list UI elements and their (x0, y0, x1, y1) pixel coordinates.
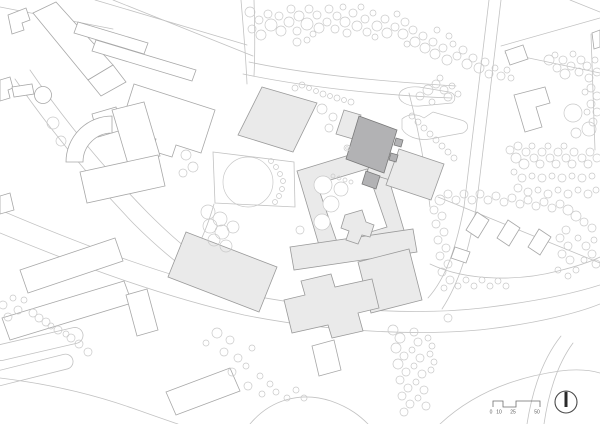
tree-cluster-east-residential-shape (540, 198, 548, 206)
site-plan-drawing: 0 10 25 50 (0, 0, 600, 424)
tree-cluster-north-shape (453, 52, 461, 60)
tree-cluster-east-residential-shape (564, 242, 572, 250)
building-outline (592, 30, 600, 49)
tree-cluster-midright-shape (584, 160, 592, 168)
tree-cluster-north-shape (462, 59, 472, 69)
tree-cluster-topright-shape (592, 57, 598, 63)
tree-cluster-north-shape (420, 43, 430, 53)
tree-cluster-midright-shape (538, 174, 546, 182)
tree-scatter-south-shape (244, 382, 252, 390)
landform-contours-shape (402, 112, 468, 139)
tree-row-east-of-highlight-shape (432, 80, 440, 88)
plaza-and-campus-trees-shape (278, 172, 283, 177)
tree-cluster-north-shape (293, 38, 301, 46)
tree-cluster-north-shape (429, 38, 437, 46)
tree-band-southeast-shape (402, 368, 410, 376)
tree-scatter-south-shape (249, 345, 255, 351)
roads-and-paths-shape (250, 397, 368, 424)
tree-cluster-east-residential-shape (588, 250, 596, 258)
tree-row-campus-north-shape (307, 86, 312, 91)
tree-cluster-east-residential-shape (440, 228, 448, 236)
tree-cluster-east-residential-shape (580, 218, 588, 226)
tree-cluster-north-shape (504, 67, 510, 73)
tree-cluster-topright-shape (587, 84, 595, 92)
tree-band-southeast-shape (409, 347, 415, 353)
roads-and-paths-shape (570, 0, 600, 12)
tree-cluster-east-residential-shape (503, 283, 509, 289)
tree-cluster-topright-shape (585, 74, 593, 82)
tree-cluster-north-shape (409, 26, 417, 34)
tree-cluster-east-residential-shape (442, 244, 450, 252)
tree-band-southeast-shape (410, 328, 418, 336)
tree-cluster-east-residential-shape (500, 198, 508, 206)
plaza-and-campus-trees-shape (296, 226, 304, 234)
tree-row-east-of-highlight-shape (439, 143, 445, 149)
roads-and-paths-shape (464, 0, 489, 207)
plaza-and-campus-trees-shape (213, 212, 227, 226)
tree-cluster-east-residential-shape (532, 202, 540, 210)
tree-cluster-topright-shape (559, 56, 567, 64)
tree-row-east-of-highlight-shape (423, 85, 433, 95)
tree-cluster-north-shape (284, 17, 294, 27)
tree-cluster-east-residential-shape (455, 283, 461, 289)
tree-cluster-east-residential-shape (434, 236, 442, 244)
tree-cluster-midright-shape (568, 160, 576, 168)
tree-cluster-north-shape (442, 55, 452, 65)
tree-cluster-north-shape (508, 75, 514, 81)
tree-row-campus-north-shape (317, 104, 327, 114)
tree-cluster-east-residential-shape (571, 211, 581, 221)
roads-and-paths-shape (0, 378, 178, 424)
tree-cluster-north-shape (370, 10, 376, 16)
plaza-and-campus-trees-shape (188, 162, 198, 172)
tree-scatter-south-shape (259, 391, 265, 397)
tree-scatter-south-shape (220, 348, 228, 356)
tree-cluster-north-shape (255, 16, 263, 24)
plaza-and-campus-trees-shape (274, 165, 279, 170)
tree-cluster-north-shape (401, 18, 409, 26)
tree-row-east-of-highlight-shape (440, 86, 448, 94)
tree-scatter-south-shape (234, 354, 242, 362)
roads-and-paths-shape (527, 336, 561, 424)
tree-cluster-east-residential-shape (591, 237, 597, 243)
building-outline (528, 229, 551, 255)
tree-band-southeast-shape (400, 408, 408, 416)
tree-cluster-midright (506, 104, 600, 198)
tree-cluster-east-residential-shape (492, 192, 500, 200)
tree-cluster-east-residential-shape (562, 226, 570, 234)
tree-cluster-north-shape (419, 32, 427, 40)
tree-band-southeast-shape (388, 325, 398, 335)
tree-band-southeast-shape (416, 354, 424, 362)
tree-row-east-of-highlight-shape (429, 99, 435, 105)
tree-scatter-south-shape (301, 395, 307, 401)
tree-cluster-midright-shape (522, 148, 530, 156)
tree-row-campus-north-shape (325, 124, 333, 132)
building-outline (8, 8, 30, 34)
tree-cluster-east-residential-shape (444, 190, 452, 198)
tree-cluster-midright-shape (518, 174, 526, 182)
tree-scatter-south-shape (293, 387, 299, 393)
scale-label: 25 (510, 410, 516, 416)
scale-label: 0 (490, 410, 493, 416)
plaza-and-campus-trees-shape (277, 194, 282, 199)
tree-row-east-of-highlight-shape (445, 149, 451, 155)
tree-cluster-topright-shape (560, 69, 570, 79)
tree-cluster-midright-shape (545, 143, 551, 149)
tree-scatter-south-shape (226, 336, 234, 344)
tree-row-east-of-highlight-shape (437, 75, 443, 81)
tree-cluster-north-shape (340, 4, 346, 10)
plaza-and-campus-trees-shape (181, 150, 191, 160)
tree-cluster-north-shape (325, 5, 333, 13)
tree-cluster-topright-shape (570, 51, 576, 57)
tree-cluster-north-shape (372, 21, 382, 31)
tree-cluster-east-residential-shape (508, 194, 516, 202)
tree-cluster-topright-shape (553, 64, 561, 72)
tree-row-campus-north-shape (329, 113, 337, 121)
tree-cluster-midright-shape (514, 142, 522, 150)
tree-cluster-midright-shape (529, 173, 535, 179)
tree-cluster-midright-shape (578, 174, 586, 182)
tree-cluster-east-residential-shape (588, 224, 596, 232)
tree-band-southeast-shape (396, 376, 404, 384)
tree-cluster-midright-shape (575, 187, 581, 193)
tree-cluster-east-residential-shape (463, 277, 469, 283)
tree-cluster-east-residential-shape (565, 273, 571, 279)
plaza-and-campus-trees-shape (179, 169, 187, 177)
tree-cluster-midright-shape (561, 143, 567, 149)
plaza-and-campus-trees-shape (314, 176, 332, 194)
scale-label: 50 (534, 410, 540, 416)
tree-cluster-north-shape (304, 37, 310, 43)
tree-cluster-midright-shape (562, 154, 570, 162)
plaza-and-campus-trees-shape (314, 214, 330, 230)
highlighted-building-bay (394, 138, 403, 147)
tree-cluster-topright-shape (552, 52, 558, 58)
tree-scatter-south-shape (273, 389, 279, 395)
building-outline (20, 238, 123, 293)
tree-row-campus-north-shape (292, 85, 298, 91)
tree-row-east-of-highlight-shape (421, 125, 427, 131)
scale-bar: 0 10 25 50 (490, 401, 540, 416)
tree-cluster-midright-shape (564, 190, 572, 198)
tree-cluster-midright-shape (570, 148, 578, 156)
tree-cluster-north-shape (372, 34, 378, 40)
tree-band-southeast-shape (393, 359, 403, 369)
tree-cluster-midright-shape (586, 148, 594, 156)
tree-band-southeast-shape (431, 359, 437, 365)
tree-cluster-east-residential-shape (556, 234, 564, 242)
tree-scatter-south-shape (257, 373, 263, 379)
tree-cluster-north-shape (301, 18, 313, 30)
tree-cluster-north-shape (382, 28, 392, 38)
tree-cluster-east-residential-shape (524, 196, 532, 204)
roads-and-paths-shape (249, 62, 456, 86)
tree-row-campus-north-shape (334, 95, 340, 101)
plaza-boundary (213, 152, 295, 207)
tree-cluster-midright-shape (578, 154, 586, 162)
tree-band-southeast-shape (425, 335, 431, 341)
building-outline (0, 193, 14, 214)
tree-cluster-east-residential-shape (438, 212, 446, 220)
tree-cluster-midright-shape (593, 154, 600, 162)
tree-cluster-north-shape (340, 17, 350, 27)
tree-cluster-north-shape (352, 21, 362, 31)
building-outline (80, 155, 165, 203)
tree-cluster-east-residential-shape (446, 276, 454, 284)
tree-cluster-north-shape (434, 27, 440, 33)
tree-band-southeast-shape (420, 386, 428, 394)
tree-cluster-midright-shape (529, 143, 535, 149)
tree-band-southeast-shape (428, 367, 434, 373)
campus-north-slab (238, 87, 317, 152)
tree-cluster-east-residential-shape (581, 257, 587, 263)
tree-cluster-east-residential-shape (573, 267, 579, 273)
tree-row-southwest-shape (75, 340, 83, 348)
tree-row-campus-north-shape (320, 91, 326, 97)
tree-band-southeast-shape (444, 314, 452, 322)
tree-cluster-north-shape (391, 23, 399, 31)
roads-and-paths-shape (476, 0, 501, 209)
plaza-and-campus-trees-shape (280, 187, 285, 192)
tree-band-southeast-shape (413, 379, 419, 385)
tree-band-southeast-shape (422, 402, 430, 410)
tree-row-east-of-highlight-shape (455, 91, 461, 97)
tree-cluster-north-shape (459, 46, 467, 54)
tree-cluster-east-residential-shape (479, 277, 485, 283)
tree-cluster-midright-shape (524, 188, 532, 196)
tree-cluster-north-shape (323, 18, 331, 26)
tree-cluster-east-residential-shape (441, 285, 447, 291)
tree-cluster-east-residential-shape (452, 196, 460, 204)
north-arrow-icon (555, 391, 577, 413)
tree-row-southwest-shape (67, 334, 75, 342)
tree-cluster-north-shape (381, 15, 389, 23)
tree-cluster-east-residential-shape (484, 196, 492, 204)
tree-row-east-of-highlight-shape (444, 93, 452, 101)
building-outline (0, 77, 13, 101)
site-plan-page: 0 10 25 50 (0, 0, 600, 424)
tree-cluster-north-shape (363, 28, 371, 36)
tree-cluster-north-shape (430, 49, 440, 59)
tree-cluster-midright-shape (555, 187, 561, 193)
tree-cluster-topright-shape (584, 109, 590, 115)
tree-cluster-east-residential-shape (471, 283, 477, 289)
tree-band-southeast-shape (400, 352, 408, 360)
tree-cluster-midright-shape (569, 173, 575, 179)
tree-cluster-north-shape (474, 63, 484, 73)
tree-row-southwest-shape (84, 348, 92, 356)
campus-sw-slab (168, 232, 277, 312)
tree-cluster-midright-shape (519, 159, 529, 169)
tree-cluster-topright-shape (582, 89, 588, 95)
tree-scatter-south-shape (267, 381, 273, 387)
tree-cluster-north (245, 4, 514, 81)
tree-cluster-east-residential-shape (436, 252, 444, 260)
tree-band-southeast-shape (414, 338, 422, 346)
tree-cluster-topright-shape (593, 92, 600, 100)
building-outline (126, 289, 158, 336)
tree-band-southeast-shape (415, 395, 421, 401)
tree-band-southeast-shape (398, 392, 406, 400)
tree-cluster-east-residential-shape (460, 190, 468, 198)
tree-cluster-north-shape (264, 10, 272, 18)
tree-cluster-north-shape (245, 7, 255, 17)
arc-building (66, 116, 112, 162)
tree-cluster-north-shape (410, 37, 420, 47)
plaza-and-campus-trees-shape (201, 205, 215, 219)
tree-scatter-south-shape (284, 395, 290, 401)
tree-band-southeast-shape (411, 363, 417, 369)
tree-cluster-midright-shape (571, 128, 581, 138)
tree-cluster-north-shape (294, 11, 304, 21)
tree-scatter-south-shape (212, 328, 222, 338)
tree-cluster-north-shape (358, 4, 364, 10)
tree-cluster-north-shape (314, 23, 324, 33)
tree-cluster-midright-shape (506, 146, 514, 154)
tree-cluster-north-shape (331, 25, 339, 33)
tree-cluster-north-shape (265, 19, 277, 31)
tree-band-southeast-shape (427, 351, 433, 357)
tree-cluster-midright-shape (593, 187, 599, 193)
plaza-and-campus-trees-shape (273, 200, 278, 205)
roads-and-paths-shape (241, 0, 247, 84)
tree-cluster-midright-shape (546, 154, 554, 162)
tree-cluster-midright-shape (538, 148, 546, 156)
tree-cluster-east-residential-shape (476, 190, 484, 198)
tree-row-campus-north-shape (348, 99, 354, 105)
tree-cluster-north-shape (275, 12, 283, 20)
landform-contours-shape (399, 87, 455, 106)
plaza-and-campus-trees-shape (227, 221, 239, 233)
plaza-and-campus-trees-shape (281, 179, 286, 184)
tree-cluster-midright-shape (535, 187, 541, 193)
tree-row-southwest-shape (0, 301, 7, 309)
tree-cluster-midright-shape (530, 154, 538, 162)
tree-cluster-east-residential-shape (495, 278, 501, 284)
tree-row-east-of-highlight-shape (427, 131, 433, 137)
tree-cluster-midright-shape (564, 104, 582, 122)
tree-cluster-east-residential-shape (432, 220, 440, 228)
tree-row-east-of-highlight-shape (451, 155, 457, 161)
tree-row-southwest-shape (54, 326, 62, 334)
tree-cluster-north-shape (361, 15, 369, 23)
tree-cluster-midright-shape (544, 190, 552, 198)
tree-cluster-midright-shape (558, 174, 566, 182)
tree-cluster-east-residential-shape (435, 195, 445, 205)
campus-cross-building (284, 274, 379, 338)
tree-band-southeast-shape (391, 343, 401, 353)
tree-cluster-north-shape (394, 11, 400, 17)
tree-cluster-midright-shape (584, 190, 592, 198)
tree-cluster-midright-shape (549, 173, 555, 179)
tree-cluster-north-shape (439, 44, 447, 52)
building-outline (312, 340, 341, 376)
tree-cluster-north-shape (293, 27, 301, 35)
tree-cluster-midright-shape (552, 160, 560, 168)
tree-cluster-east-residential-shape (430, 206, 438, 214)
context-buildings (0, 2, 600, 415)
tree-cluster-east-residential-shape (548, 204, 556, 212)
tree-cluster-topright-shape (577, 56, 585, 64)
fountain (346, 147, 349, 150)
building-outline (514, 87, 550, 132)
tree-cluster-north-shape (469, 54, 477, 62)
plaza-and-campus-trees-shape (323, 196, 339, 212)
plaza-and-campus-trees-shape (334, 182, 348, 196)
tree-cluster-east-residential-shape (566, 256, 574, 264)
tree-row-campus-north-shape (314, 89, 319, 94)
tree-cluster-north-shape (497, 72, 505, 80)
tree-cluster-east-residential-shape (558, 250, 566, 258)
scale-bar-line (493, 401, 540, 407)
tree-cluster-east-residential-shape (468, 196, 476, 204)
tree-row-southwest-shape (21, 297, 27, 303)
tree-cluster-north-shape (276, 26, 286, 36)
highlighted-building-bay (389, 153, 398, 162)
tree-cluster-north-shape (310, 31, 316, 37)
tree-cluster-east-residential-shape (582, 242, 590, 250)
tree-cluster-midright-shape (536, 160, 544, 168)
hedge-strip (0, 353, 75, 388)
tree-cluster-north-shape (446, 33, 452, 39)
tree-band-southeast-shape (429, 343, 435, 349)
building-outline (466, 212, 489, 238)
tree-cluster-east-residential-shape (556, 200, 564, 208)
tree-row-southwest-shape (10, 295, 16, 301)
tree-band-southeast (388, 314, 452, 416)
tree-cluster-north-shape (313, 11, 321, 19)
tree-cluster-midright-shape (511, 169, 517, 175)
roads-and-paths-shape (501, 18, 600, 46)
tree-cluster-east-residential-shape (555, 267, 561, 273)
tree-row-campus-north-shape (342, 98, 347, 103)
building-outline (12, 84, 34, 97)
tree-band-southeast-shape (406, 400, 414, 408)
tree-cluster-north-shape (287, 5, 295, 13)
tree-cluster-north-shape (305, 5, 313, 13)
tree-cluster-north-shape (333, 12, 341, 20)
tree-cluster-north-shape (398, 29, 408, 39)
tree-cluster-midright-shape (589, 173, 595, 179)
tree-scatter-south-shape (243, 363, 249, 369)
tree-cluster-north-shape (404, 41, 410, 47)
tree-band-southeast-shape (404, 384, 412, 392)
scale-label: 10 (496, 410, 502, 416)
round-annex (35, 87, 52, 104)
building-outline (497, 220, 520, 246)
tree-cluster-topright-shape (575, 68, 583, 76)
tree-cluster-north-shape (450, 41, 456, 47)
tree-cluster-east-residential (430, 190, 600, 291)
tree-band-southeast-shape (395, 333, 405, 343)
plaza-and-campus-trees-shape (47, 117, 59, 129)
round-plaza (223, 157, 273, 207)
tree-cluster-east-residential-shape (487, 283, 493, 289)
tree-cluster-east-residential-shape (575, 235, 581, 241)
tree-row-east-of-highlight-shape (409, 113, 415, 119)
tree-cluster-topright-shape (583, 62, 591, 70)
tree-cluster-midright-shape (514, 184, 522, 192)
tree-cluster-north-shape (349, 9, 357, 17)
tree-cluster-north-shape (481, 58, 489, 66)
tree-row-campus-north-shape (328, 94, 333, 99)
tree-band-southeast-shape (418, 370, 426, 378)
tree-cluster-east-residential-shape (516, 200, 524, 208)
tree-scatter-south-shape (203, 340, 209, 346)
tree-cluster-north-shape (343, 29, 351, 37)
